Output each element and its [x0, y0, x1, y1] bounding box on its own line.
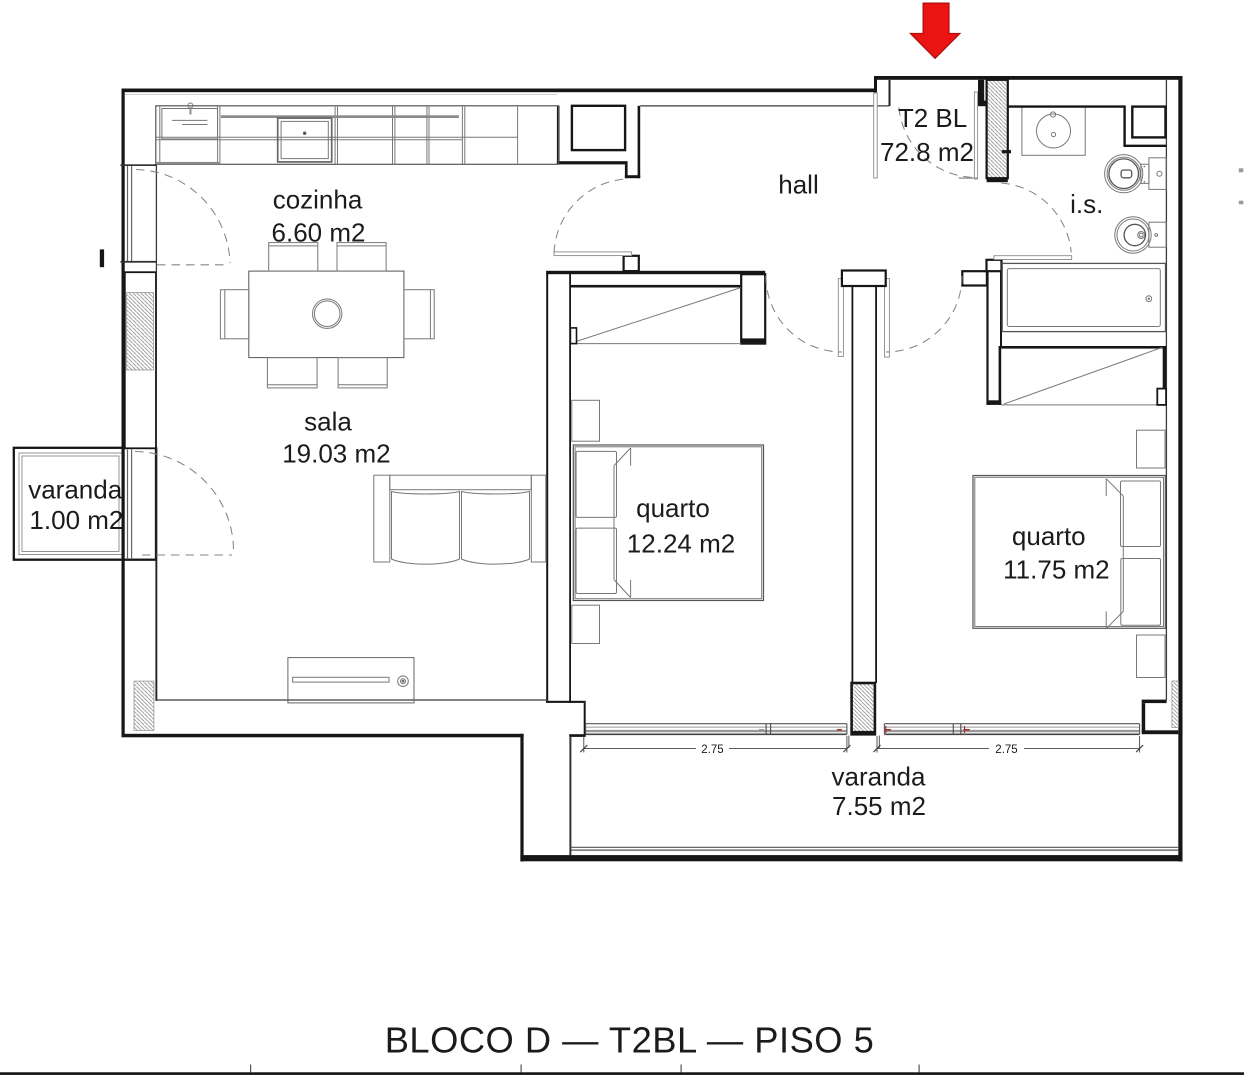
- svg-text:2.75: 2.75: [995, 744, 1017, 756]
- svg-text:varanda: varanda: [832, 761, 926, 791]
- svg-text:varanda: varanda: [28, 474, 122, 504]
- svg-text:quarto: quarto: [636, 493, 710, 523]
- svg-text:72.8 m2: 72.8 m2: [880, 137, 974, 167]
- svg-text:2.75: 2.75: [701, 744, 723, 756]
- svg-text:6.60 m2: 6.60 m2: [272, 217, 366, 247]
- svg-text:quarto: quarto: [1012, 521, 1086, 551]
- svg-text:11.75 m2: 11.75 m2: [1003, 555, 1109, 585]
- svg-text:12.24 m2: 12.24 m2: [627, 529, 735, 559]
- svg-text:hall: hall: [778, 169, 818, 199]
- svg-text:7.55 m2: 7.55 m2: [832, 791, 926, 821]
- svg-text:1.00 m2: 1.00 m2: [29, 505, 123, 535]
- svg-text:i.s.: i.s.: [1070, 189, 1103, 219]
- svg-text:BLOCO D — T2BL — PISO 5: BLOCO D — T2BL — PISO 5: [385, 1020, 875, 1061]
- svg-text:cozinha: cozinha: [273, 184, 363, 214]
- svg-text:sala: sala: [304, 406, 352, 436]
- svg-text:T2 BL: T2 BL: [898, 103, 967, 133]
- svg-text:19.03 m2: 19.03 m2: [282, 438, 390, 468]
